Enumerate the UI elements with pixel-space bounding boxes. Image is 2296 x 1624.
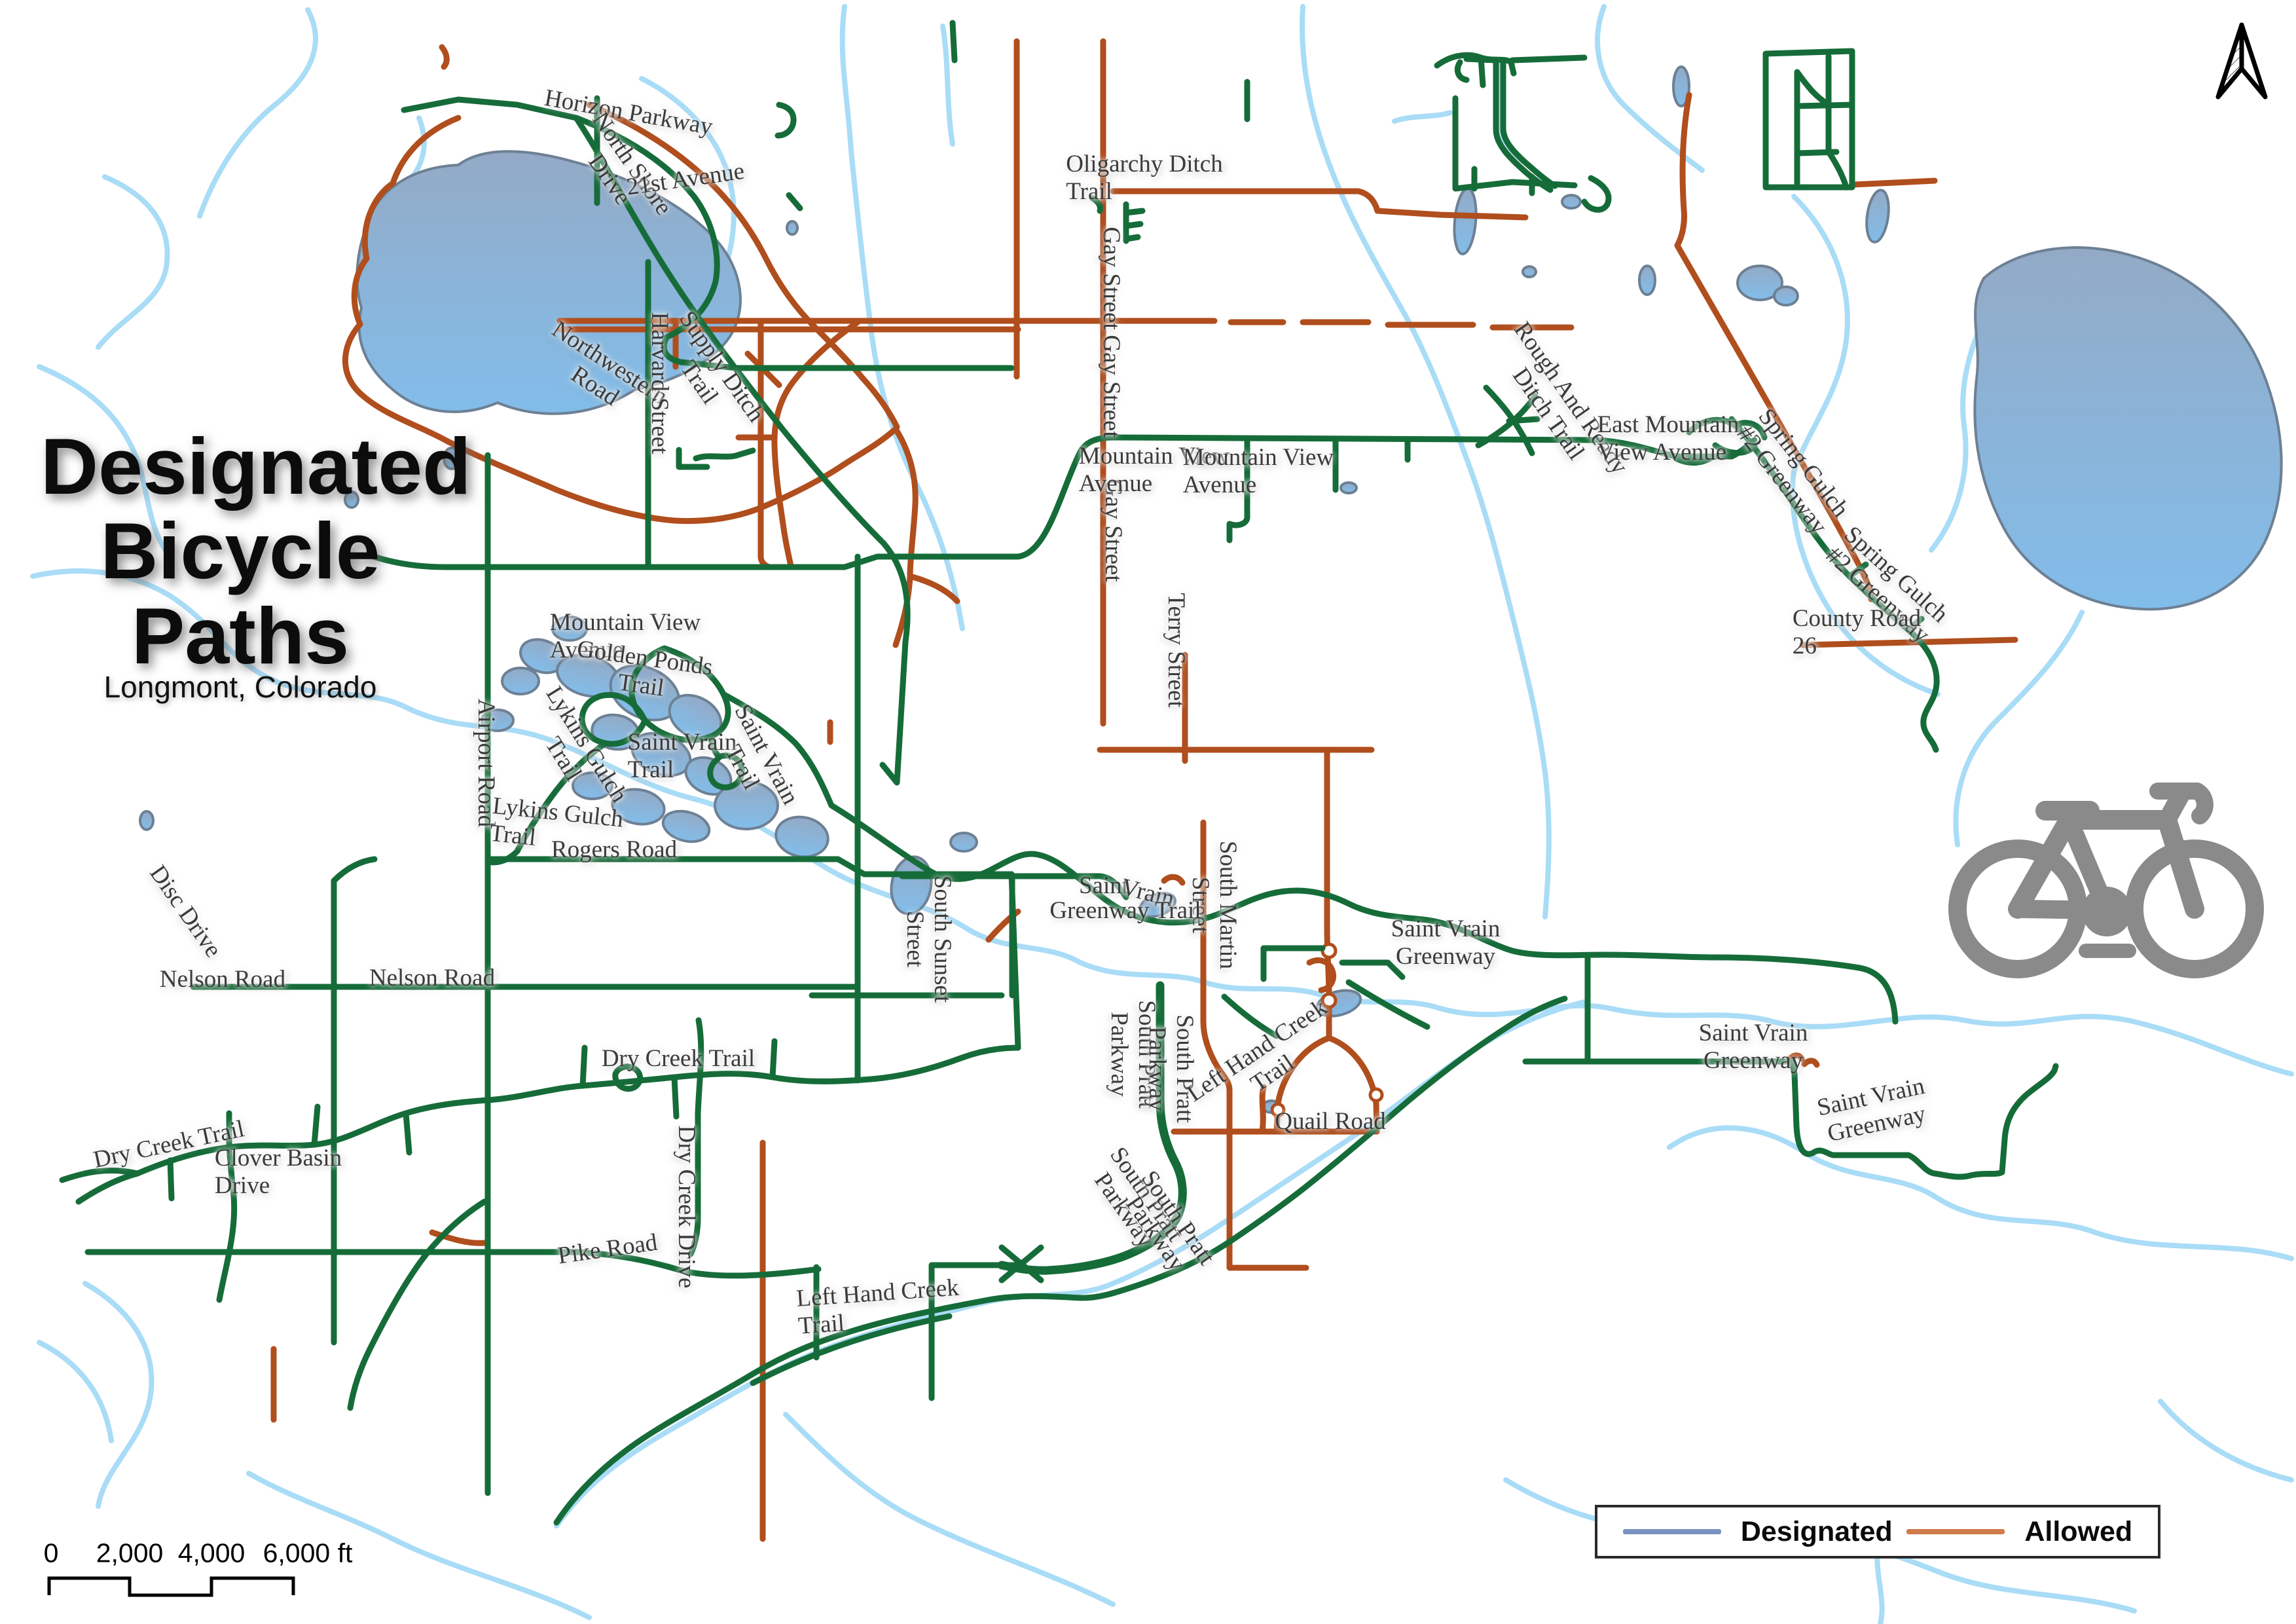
map-title-line3: Paths: [41, 594, 440, 678]
map-title-line2: Bicycle: [41, 509, 440, 593]
map-title-line1: Designated: [41, 424, 440, 509]
legend-designated-label: Designated: [1741, 1516, 1893, 1548]
lakes-layer: [140, 67, 2282, 1113]
designated-line-swatch: [1623, 1529, 1721, 1534]
legend-item-allowed: Allowed: [1906, 1516, 2132, 1548]
bicycle-icon: [1958, 791, 2255, 969]
lake-east: [1975, 248, 2281, 609]
north-arrow: [2218, 25, 2265, 97]
scale-bar: [49, 1578, 293, 1595]
map-subtitle: Longmont, Colorado: [41, 669, 440, 705]
legend: Designated Allowed: [1595, 1505, 2160, 1559]
scale-tick-4000: 4,000: [178, 1538, 246, 1569]
map-canvas: Horizon Parkway North Shore Drive 21st A…: [0, 0, 2296, 1624]
scale-tick-2000: 2,000: [96, 1538, 164, 1569]
map-title: Designated Bicycle Paths: [41, 424, 440, 678]
legend-allowed-label: Allowed: [2024, 1516, 2132, 1548]
scale-tick-0: 0: [44, 1538, 59, 1569]
lake-northwest: [357, 151, 740, 414]
scale-tick-6000ft: 6,000 ft: [263, 1538, 353, 1569]
legend-item-designated: Designated: [1623, 1516, 1893, 1548]
allowed-line-swatch: [1906, 1529, 2005, 1534]
basemap-svg: [0, 0, 2296, 1624]
